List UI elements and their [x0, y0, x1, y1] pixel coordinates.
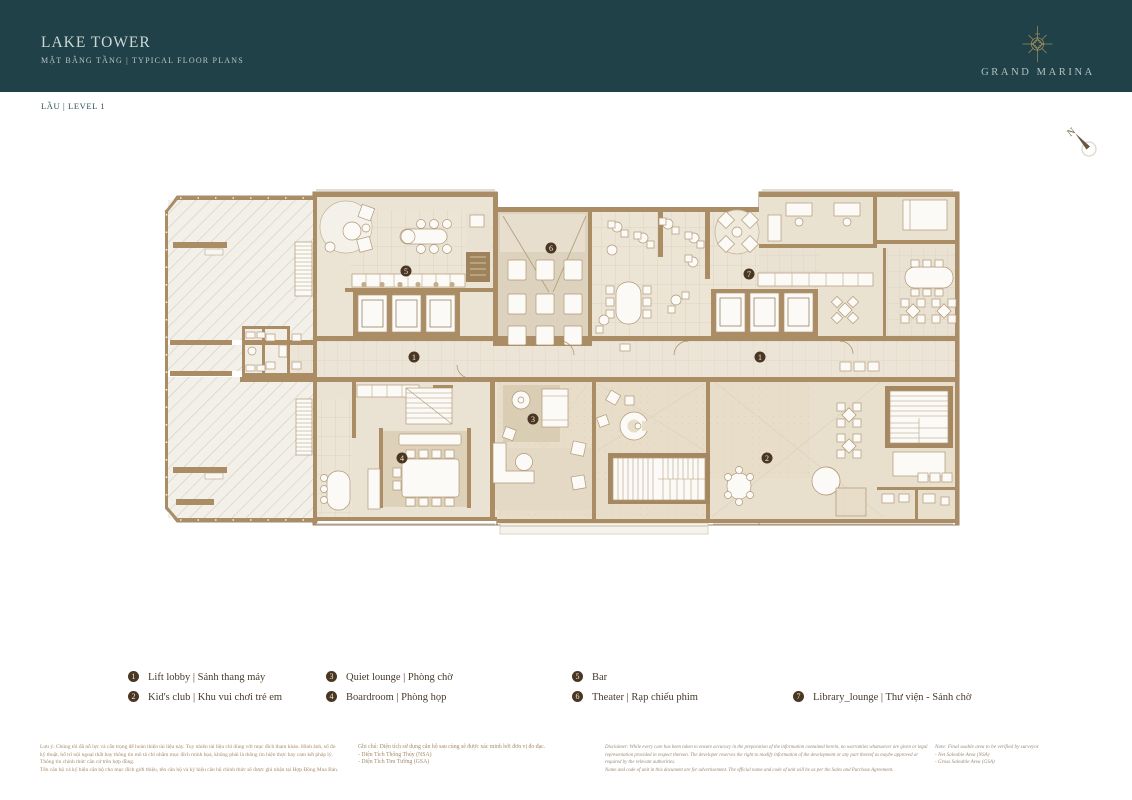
svg-text:6: 6: [549, 244, 553, 253]
svg-text:5: 5: [404, 267, 408, 276]
svg-text:7: 7: [747, 270, 751, 279]
svg-text:1: 1: [758, 353, 762, 362]
svg-text:2: 2: [765, 454, 769, 463]
svg-text:3: 3: [531, 415, 535, 424]
svg-text:4: 4: [400, 454, 404, 463]
svg-text:1: 1: [412, 353, 416, 362]
